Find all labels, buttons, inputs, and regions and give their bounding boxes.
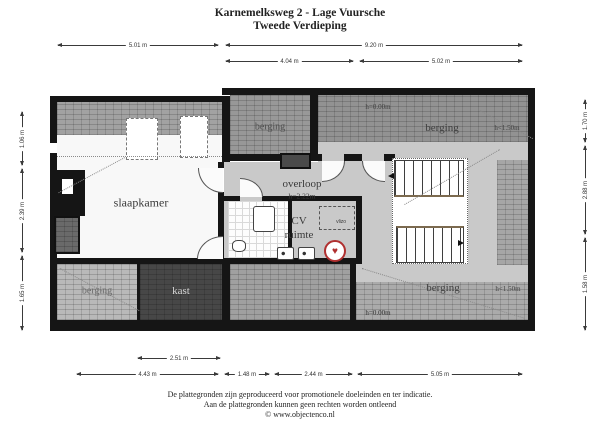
dimension-label: 1.70 m [583, 109, 589, 133]
page-title-line2: Tweede Verdieping [0, 20, 600, 32]
vlizo-hatch-box: vlizo [319, 206, 355, 230]
room-label-berging-top-right: berging [425, 122, 458, 134]
dimension-bottom-3: 2.44 m [275, 374, 352, 375]
dimension-label: 1.65 m [20, 281, 26, 305]
wall-segment [310, 88, 318, 156]
height-label-top-low: h<1.50m [494, 124, 519, 132]
page-title-line1: Karnemelksweg 2 - Lage Vuursche [0, 7, 600, 19]
dimension-label: 4.04 m [277, 59, 301, 65]
footer-disclaimer-line2: Aan de plattegronden kunnen geen rechten… [0, 400, 600, 409]
boiler-unit [298, 247, 315, 260]
dimension-left-2: 2.39 m [22, 169, 23, 252]
wall-segment [222, 88, 535, 95]
dimension-label: 1.48 m [235, 372, 259, 378]
footer-disclaimer-line1: De plattegronden zijn geproduceerd voor … [0, 390, 600, 399]
floor-plan-page: { "title": { "line1": "Karnemelksweg 2 -… [0, 0, 600, 424]
window-gap [50, 143, 57, 153]
height-label-bottom-zero: h=0.00m [365, 309, 390, 317]
wall-segment [528, 88, 535, 331]
duct-block [280, 153, 311, 169]
ceiling-height-dotted-line [57, 156, 222, 157]
footer-copyright: © www.objectenco.nl [0, 410, 600, 419]
vlizo-label: vlizo [336, 219, 346, 225]
dimension-right-3: 1.58 m [585, 238, 586, 330]
room-label-overloop-height: h=2.22m [289, 192, 316, 201]
wall-segment [344, 154, 362, 161]
wall-segment [222, 196, 240, 201]
wall-segment [222, 96, 230, 162]
cv-boiler-icon: ♥ [324, 240, 346, 262]
dimension-bottom-4: 5.05 m [358, 374, 522, 375]
dimension-top-right: 9.20 m [226, 45, 522, 46]
wall-segment [137, 264, 140, 320]
stairs-upper-flight [394, 160, 464, 197]
stair-direction-arrow [458, 240, 464, 246]
dormer-window [126, 118, 158, 160]
boiler-unit [277, 247, 294, 260]
room-label-berging-top-mid: berging [255, 122, 285, 133]
dimension-label: 9.20 m [362, 43, 386, 49]
dimension-label: 2.51 m [167, 356, 191, 362]
dimension-top-sub-right: 5.02 m [360, 61, 522, 62]
dormer-window [180, 116, 208, 158]
dimension-right-1: 1.70 m [585, 100, 586, 142]
dimension-top-left: 5.01 m [58, 45, 218, 46]
dimension-top-sub-left: 4.04 m [226, 61, 353, 62]
dimension-bottom-1: 4.43 m [77, 374, 218, 375]
wall-segment [222, 258, 230, 320]
dimension-label: 1.58 m [583, 272, 589, 296]
dimension-label: 5.01 m [126, 43, 150, 49]
dimension-label: 5.05 m [428, 372, 452, 378]
wall-segment [356, 196, 362, 264]
toilet-fixture [232, 240, 246, 252]
room-label-berging-bottom-right: berging [426, 282, 459, 294]
wall-segment [350, 264, 356, 320]
room-label-slaapkamer: slaapkamer [114, 196, 169, 211]
dimension-bottom-2: 1.48 m [225, 374, 269, 375]
stairs-lower-flight [396, 226, 464, 263]
dimension-right-2: 2.88 m [585, 146, 586, 234]
dimension-label: 5.02 m [429, 59, 453, 65]
dimension-label: 2.88 m [583, 178, 589, 202]
dimension-left-3: 1.65 m [22, 256, 23, 330]
dimension-label: 1.06 m [20, 126, 26, 150]
room-label-cv: CV [291, 215, 306, 227]
stair-direction-arrow [388, 173, 394, 179]
wall-segment [50, 96, 230, 102]
room-label-kast: kast [172, 285, 190, 297]
right-roof-slope-hatch [497, 160, 528, 265]
height-label-bottom-low: h<1.50m [495, 285, 520, 293]
room-label-overloop: overloop [282, 178, 321, 190]
sink-fixture [253, 206, 275, 232]
room-label-berging-bottom-left: berging [82, 286, 112, 297]
dimension-label: 2.44 m [301, 372, 325, 378]
wall-segment [50, 320, 535, 331]
shaft-hatch [54, 216, 80, 254]
dimension-bottom-sub: 2.51 m [138, 358, 220, 359]
dimension-label: 4.43 m [135, 372, 159, 378]
room-label-cv-ruimte: ruimte [285, 229, 314, 241]
dimension-left-1: 1.06 m [22, 112, 23, 165]
height-label-top-zero: h=0.00m [365, 103, 390, 111]
bottom-mid-slope-hatch [230, 264, 350, 320]
dimension-label: 2.39 m [20, 198, 26, 222]
